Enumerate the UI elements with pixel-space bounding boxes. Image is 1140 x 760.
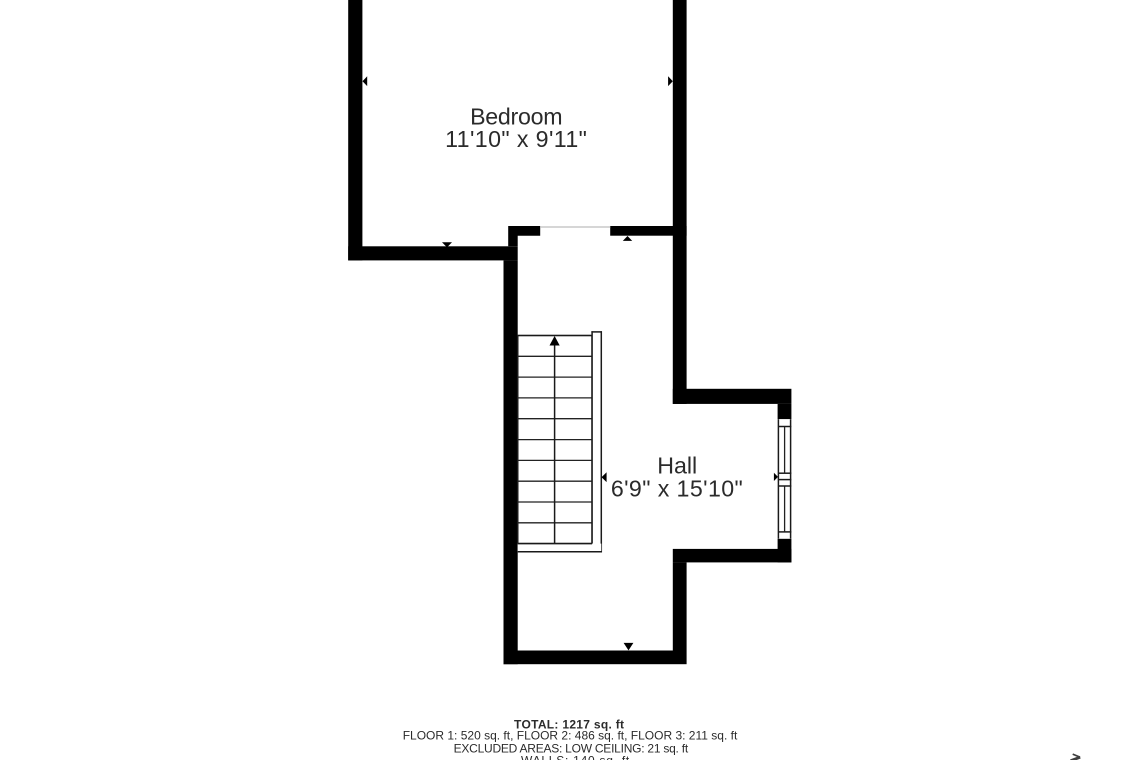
svg-text:11'10" x 9'11": 11'10" x 9'11" [445, 126, 587, 152]
svg-text:6'9" x 15'10": 6'9" x 15'10" [611, 475, 743, 501]
svg-text:FLOOR 1: 520 sq. ft, FLOOR 2:: FLOOR 1: 520 sq. ft, FLOOR 2: 486 sq. ft… [403, 728, 738, 742]
svg-text:WALLS: 140 sq. ft: WALLS: 140 sq. ft [521, 754, 630, 760]
